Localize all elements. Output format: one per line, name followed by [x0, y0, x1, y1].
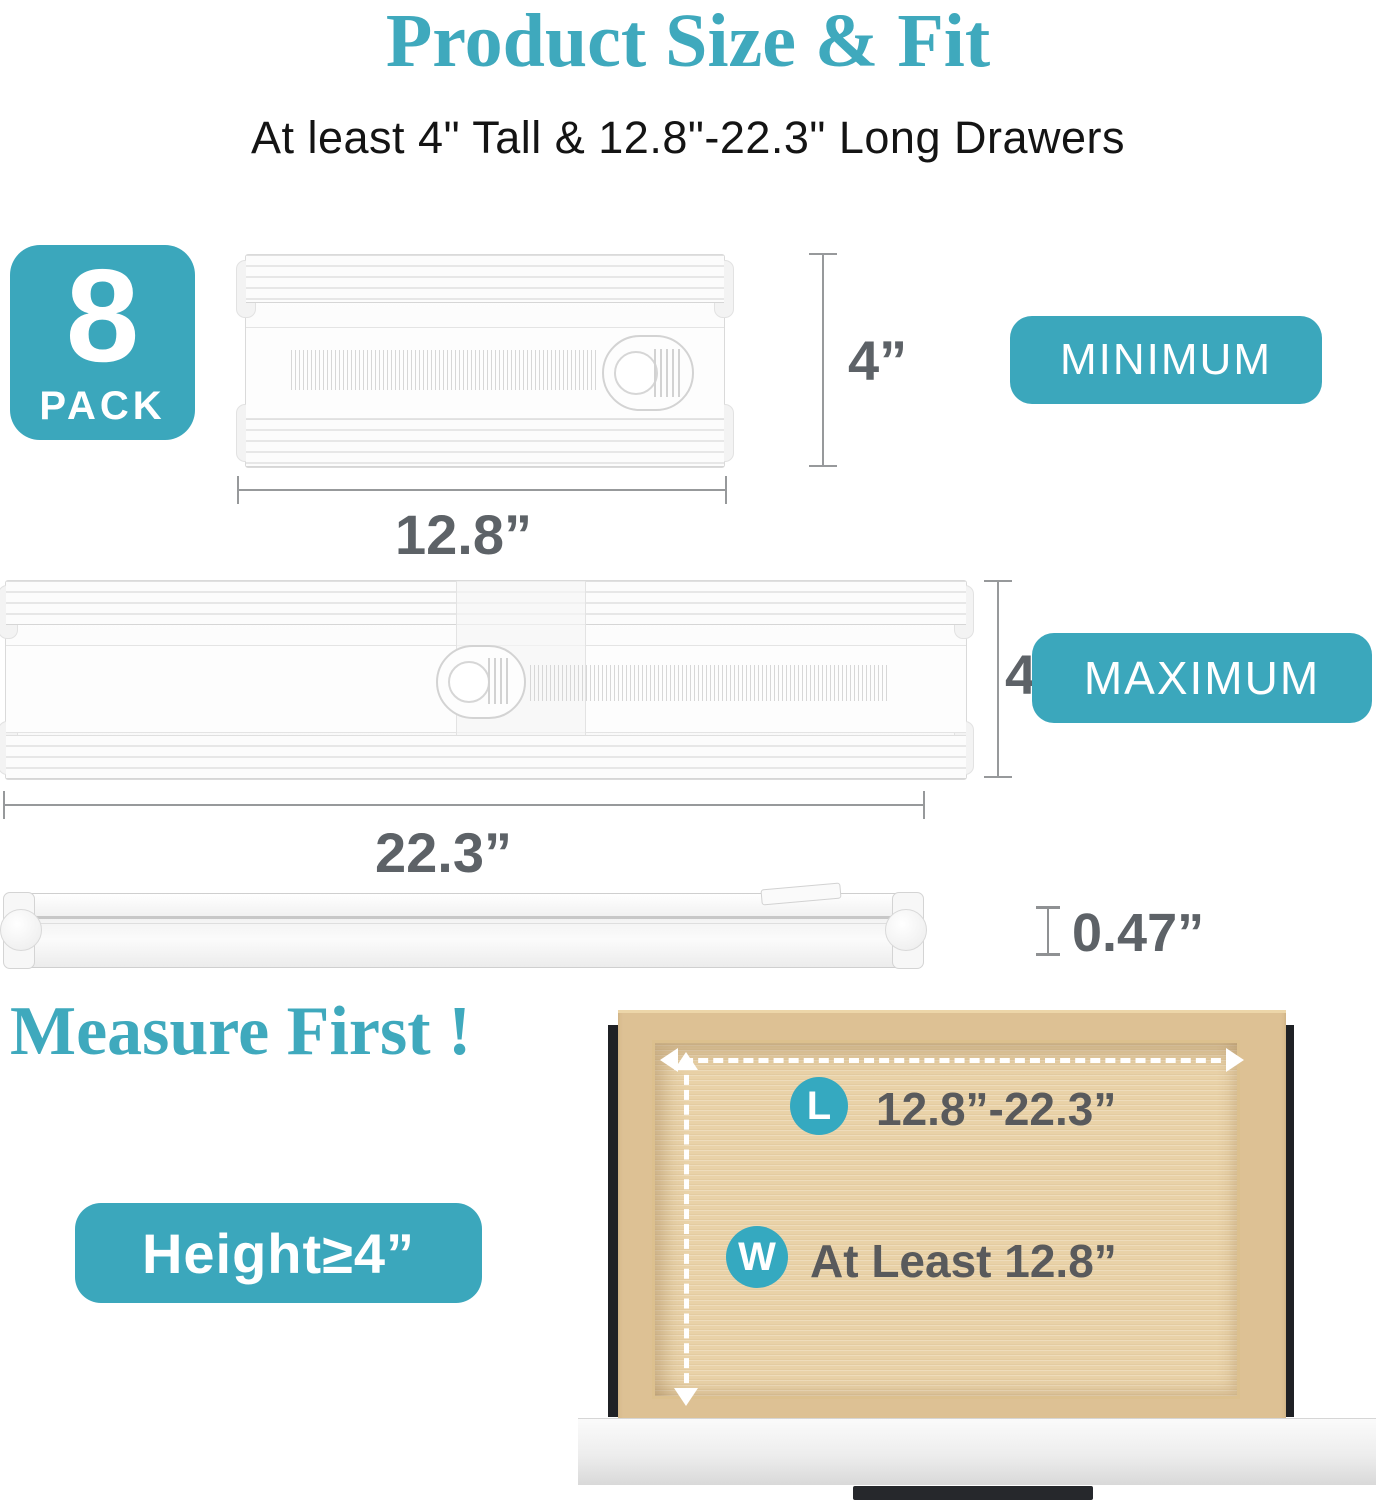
max-length-dimension-line — [3, 804, 925, 806]
max-height-dimension-line — [997, 580, 999, 778]
divider-ratchet-strip — [291, 350, 599, 390]
arrow-right-head — [1226, 1048, 1256, 1072]
length-value: 12.8”-22.3” — [876, 1082, 1116, 1136]
divider-maximum-illustration — [5, 580, 967, 780]
thickness-label: 0.47” — [1072, 902, 1204, 964]
page-subtitle: At least 4" Tall & 12.8"-22.3" Long Draw… — [0, 112, 1376, 164]
min-length-dimension-line — [237, 489, 727, 491]
length-arrow — [648, 1048, 1256, 1072]
divider-top-edge — [12, 916, 915, 919]
width-value: At Least 12.8” — [810, 1234, 1117, 1288]
drawer-illustration — [618, 1010, 1286, 1425]
height-requirement-badge: Height≥4” — [75, 1203, 482, 1303]
divider-lock-dial — [614, 351, 658, 395]
page-title: Product Size & Fit — [0, 2, 1376, 82]
divider-lock — [436, 645, 526, 719]
divider-clip — [760, 883, 841, 906]
width-arrow — [674, 1040, 698, 1418]
min-height-label: 4” — [848, 328, 907, 393]
minimum-badge: MINIMUM — [1010, 316, 1322, 404]
length-arrow-line — [668, 1058, 1236, 1063]
measure-first-heading: Measure First ! — [10, 992, 471, 1072]
thickness-dimension-marker — [1036, 906, 1060, 956]
arrow-down-head — [674, 1388, 698, 1418]
divider-lock-ribs — [654, 349, 680, 397]
pack-count-badge: 8 PACK — [10, 245, 195, 440]
max-length-label: 22.3” — [375, 820, 512, 885]
divider-bottom-rail — [6, 735, 966, 779]
pack-count-number: 8 — [66, 250, 139, 382]
min-length-label: 12.8” — [395, 502, 532, 567]
divider-lock-dial — [448, 661, 490, 703]
maximum-badge: MAXIMUM — [1032, 633, 1372, 723]
drawer-front-base — [578, 1418, 1376, 1485]
divider-ratchet-strip — [530, 665, 888, 701]
width-arrow-line — [684, 1060, 689, 1398]
thickness-cap-bottom — [1036, 953, 1060, 956]
pack-count-label: PACK — [39, 384, 165, 429]
min-height-dimension-line — [822, 253, 824, 467]
divider-top-edge-highlight — [12, 923, 915, 924]
divider-top-rail — [246, 255, 724, 303]
divider-lock-ribs — [488, 658, 512, 704]
product-size-fit-infographic: Product Size & Fit At least 4" Tall & 12… — [0, 0, 1376, 1500]
divider-bottom-rail — [246, 419, 724, 467]
length-marker-circle: L — [790, 1077, 848, 1135]
divider-end-knob — [885, 909, 927, 951]
width-marker-circle: W — [726, 1226, 788, 1288]
drawer-handle — [853, 1486, 1093, 1500]
divider-lock — [602, 335, 694, 411]
thickness-bar — [1047, 906, 1049, 956]
divider-side-illustration — [5, 893, 922, 968]
divider-minimum-illustration — [245, 254, 725, 468]
divider-end-knob — [0, 909, 42, 951]
